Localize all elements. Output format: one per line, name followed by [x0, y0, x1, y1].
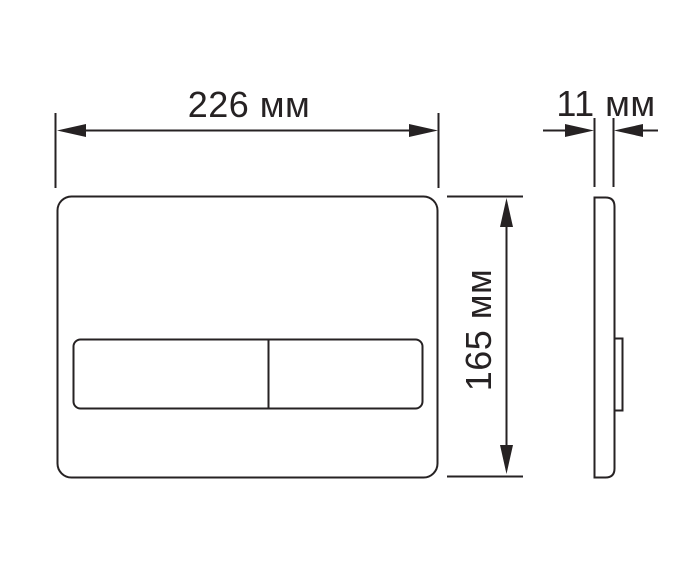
- width-arrowhead-left: [57, 124, 86, 137]
- width-arrowhead-right: [409, 124, 438, 137]
- depth-arrowhead-right: [614, 124, 643, 137]
- height-dimension-label: 165 мм: [458, 269, 499, 392]
- side-profile-outline: [595, 198, 615, 478]
- height-dimension: 165 мм: [447, 197, 523, 477]
- width-dimension-label: 226 мм: [188, 84, 311, 125]
- width-dimension: 226 мм: [56, 84, 439, 188]
- depth-dimension-label: 11 мм: [556, 83, 655, 124]
- drawing-svg: 226 мм 165 мм: [0, 0, 697, 576]
- side-view: [595, 198, 623, 478]
- plate-outline: [58, 197, 438, 478]
- height-arrowhead-top: [500, 198, 513, 227]
- height-arrowhead-bottom: [500, 445, 513, 474]
- flush-button-panel: [74, 340, 423, 409]
- depth-arrowhead-left: [565, 124, 594, 137]
- technical-drawing-canvas: 226 мм 165 мм: [0, 0, 697, 576]
- depth-dimension: 11 мм: [543, 83, 658, 187]
- front-view: [58, 197, 438, 478]
- side-button-protrusion: [615, 339, 623, 411]
